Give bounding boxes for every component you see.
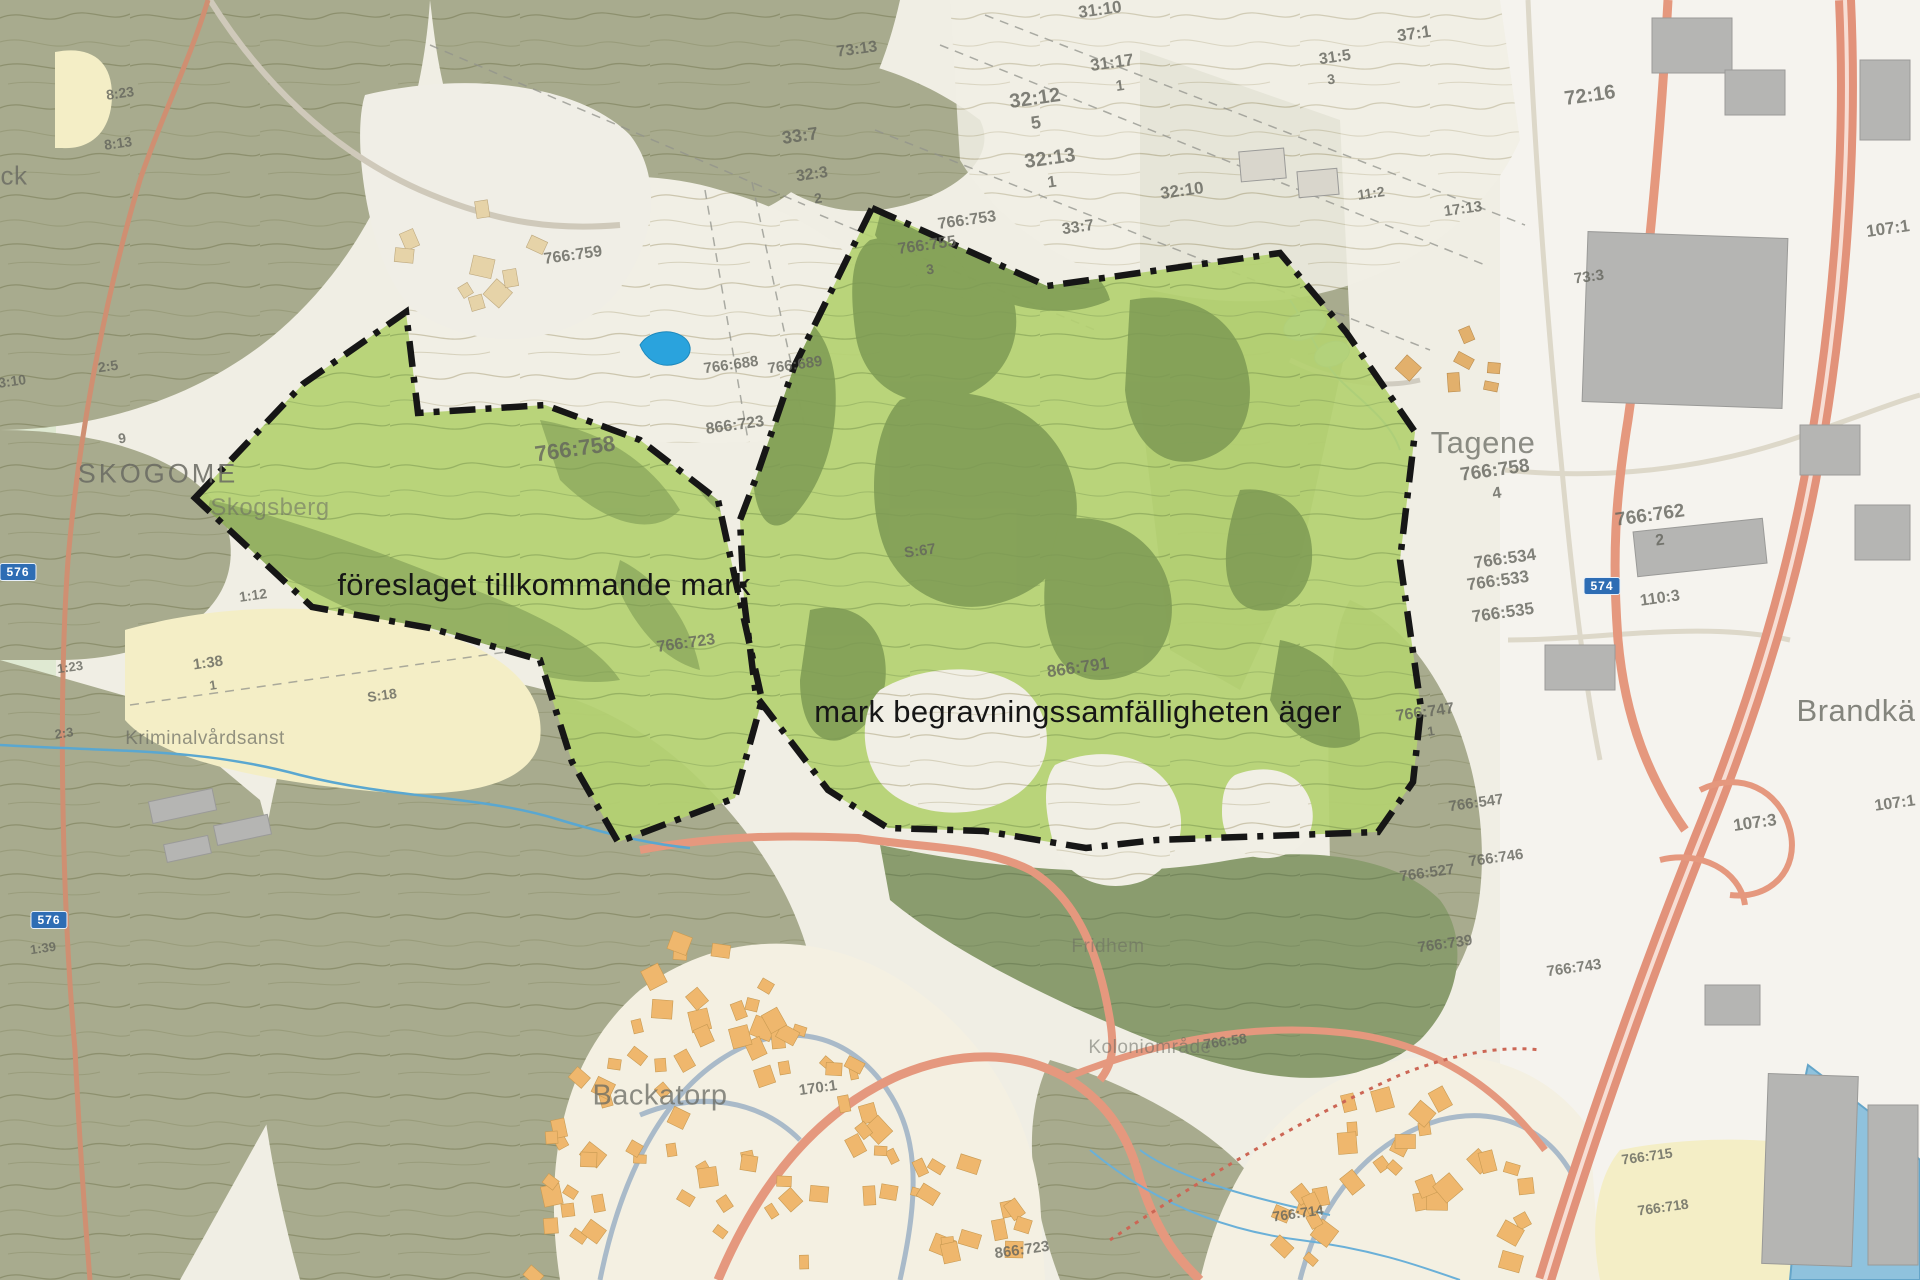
house [655,1058,667,1072]
house [1487,362,1500,374]
map-stage: föreslaget tillkommande mark mark begrav… [0,0,1920,1280]
house [863,1186,876,1206]
house [545,1131,558,1144]
house [740,1154,758,1172]
house [666,1143,677,1157]
house [826,1062,843,1076]
house [711,943,731,958]
house [778,1061,790,1075]
house [1005,1241,1023,1258]
house [697,1166,718,1188]
map-canvas [0,0,1920,1280]
house [799,1255,808,1269]
house [1337,1132,1357,1155]
house [543,1218,558,1234]
house [561,1203,575,1217]
house [502,268,518,287]
house [777,1176,792,1187]
house [874,1146,887,1156]
house [651,999,673,1019]
house [607,1058,621,1070]
house [394,248,414,264]
house [475,200,490,219]
house [1518,1178,1535,1195]
house [580,1152,597,1167]
house [745,997,760,1012]
house [879,1184,898,1201]
house [1395,1134,1415,1148]
house [809,1185,829,1202]
house [1447,372,1460,392]
